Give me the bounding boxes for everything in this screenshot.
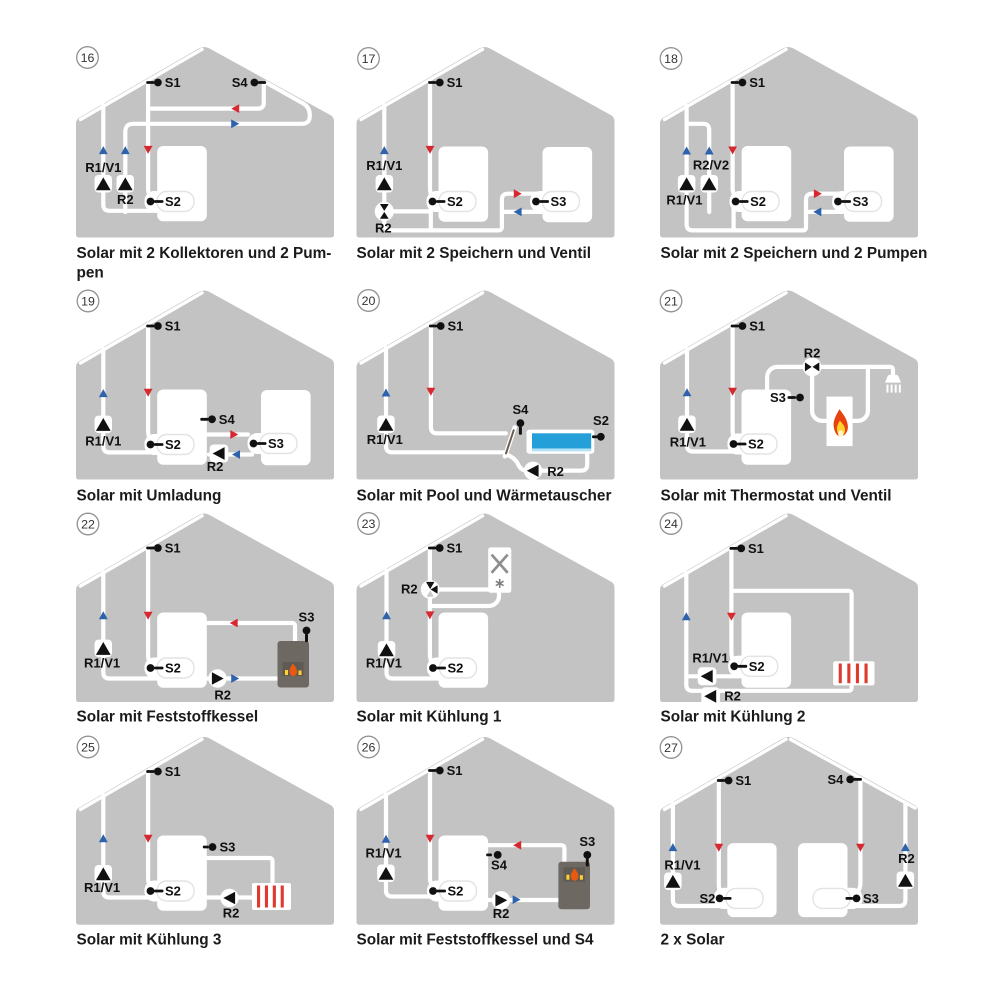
svg-text:26: 26	[362, 741, 376, 755]
svg-text:R2/V2: R2/V2	[693, 158, 729, 173]
svg-text:R2: R2	[724, 689, 741, 704]
svg-text:S3: S3	[299, 610, 315, 625]
svg-text:S3: S3	[770, 390, 786, 405]
svg-text:S3: S3	[220, 840, 236, 855]
svg-text:R2: R2	[223, 906, 240, 921]
svg-text:S2: S2	[165, 437, 181, 452]
svg-text:R1/V1: R1/V1	[692, 651, 728, 666]
svg-text:S2: S2	[447, 194, 463, 209]
svg-text:S2: S2	[750, 194, 766, 209]
svg-text:S1: S1	[165, 764, 181, 779]
svg-text:Solar mit Thermostat und Venti: Solar mit Thermostat und Ventil	[661, 487, 892, 504]
svg-text:R1/V1: R1/V1	[670, 434, 706, 449]
svg-text:25: 25	[81, 741, 95, 755]
svg-text:S1: S1	[448, 319, 464, 334]
svg-text:S2: S2	[699, 891, 715, 906]
svg-text:S2: S2	[165, 194, 181, 209]
svg-text:R2: R2	[375, 221, 392, 236]
svg-text:Solar mit Feststoffkessel: Solar mit Feststoffkessel	[77, 709, 259, 726]
svg-text:S4: S4	[512, 402, 529, 417]
svg-text:S2: S2	[749, 659, 765, 674]
svg-text:R2: R2	[804, 346, 821, 361]
svg-text:S3: S3	[551, 194, 567, 209]
svg-text:R2: R2	[493, 906, 510, 921]
svg-text:R2: R2	[117, 192, 134, 207]
svg-text:23: 23	[362, 517, 376, 531]
svg-text:S1: S1	[447, 75, 463, 90]
svg-text:S1: S1	[749, 75, 765, 90]
svg-text:22: 22	[81, 518, 95, 532]
svg-text:S1: S1	[749, 319, 765, 334]
svg-text:R1/V1: R1/V1	[366, 656, 402, 671]
svg-text:R1/V1: R1/V1	[366, 846, 402, 861]
svg-text:pen: pen	[77, 265, 104, 282]
svg-text:27: 27	[664, 741, 678, 755]
svg-text:Solar mit Umladung: Solar mit Umladung	[77, 487, 222, 504]
svg-text:R2: R2	[214, 688, 231, 703]
svg-text:S4: S4	[219, 412, 236, 427]
svg-text:S3: S3	[579, 834, 595, 849]
svg-text:R1/V1: R1/V1	[84, 880, 120, 895]
svg-text:S3: S3	[268, 436, 284, 451]
svg-text:R1/V1: R1/V1	[664, 858, 700, 873]
svg-text:S1: S1	[165, 541, 181, 556]
svg-text:21: 21	[664, 295, 678, 309]
svg-text:Solar mit Kühlung 1: Solar mit Kühlung 1	[357, 709, 502, 726]
svg-text:18: 18	[664, 52, 678, 66]
svg-text:20: 20	[362, 294, 376, 308]
svg-text:R2: R2	[547, 464, 564, 479]
svg-text:24: 24	[664, 517, 678, 531]
svg-text:Solar mit Pool und Wärmetausch: Solar mit Pool und Wärmetauscher	[357, 487, 612, 504]
svg-text:S2: S2	[448, 884, 464, 899]
svg-text:R1/V1: R1/V1	[367, 432, 403, 447]
svg-text:2 x Solar: 2 x Solar	[661, 931, 725, 948]
svg-text:16: 16	[81, 51, 95, 65]
svg-text:19: 19	[81, 295, 95, 309]
svg-text:S4: S4	[232, 75, 249, 90]
svg-text:17: 17	[362, 52, 376, 66]
svg-text:S2: S2	[748, 437, 764, 452]
svg-text:S2: S2	[593, 413, 609, 428]
svg-text:R2: R2	[898, 851, 915, 866]
svg-text:Solar mit Feststoffkessel und: Solar mit Feststoffkessel und S4	[357, 931, 595, 948]
svg-text:Solar mit 2 Speichern und 2 Pu: Solar mit 2 Speichern und 2 Pumpen	[661, 245, 928, 262]
svg-text:S2: S2	[448, 661, 464, 676]
svg-text:S3: S3	[863, 891, 879, 906]
svg-text:S4: S4	[827, 772, 844, 787]
svg-text:Solar mit 2 Kollektoren und 2: Solar mit 2 Kollektoren und 2 Pum-	[77, 245, 332, 262]
svg-text:S1: S1	[735, 773, 751, 788]
svg-text:S1: S1	[165, 75, 181, 90]
svg-text:S1: S1	[748, 541, 764, 556]
svg-text:Solar mit Kühlung 3: Solar mit Kühlung 3	[77, 931, 222, 948]
svg-text:R2: R2	[207, 459, 224, 474]
svg-text:R1/V1: R1/V1	[366, 158, 402, 173]
svg-text:S2: S2	[165, 661, 181, 676]
svg-text:S1: S1	[447, 541, 463, 556]
svg-text:Solar mit Kühlung 2: Solar mit Kühlung 2	[661, 709, 806, 726]
svg-text:S2: S2	[165, 884, 181, 899]
svg-text:R1/V1: R1/V1	[85, 160, 121, 175]
svg-text:S1: S1	[447, 763, 463, 778]
svg-text:S4: S4	[491, 857, 508, 872]
svg-text:R1/V1: R1/V1	[85, 433, 121, 448]
svg-text:Solar mit 2 Speichern und Vent: Solar mit 2 Speichern und Ventil	[357, 245, 591, 262]
svg-text:R2: R2	[401, 581, 418, 596]
svg-text:S3: S3	[853, 194, 869, 209]
svg-text:S1: S1	[165, 319, 181, 334]
svg-text:R1/V1: R1/V1	[84, 656, 120, 671]
svg-text:R1/V1: R1/V1	[666, 193, 702, 208]
